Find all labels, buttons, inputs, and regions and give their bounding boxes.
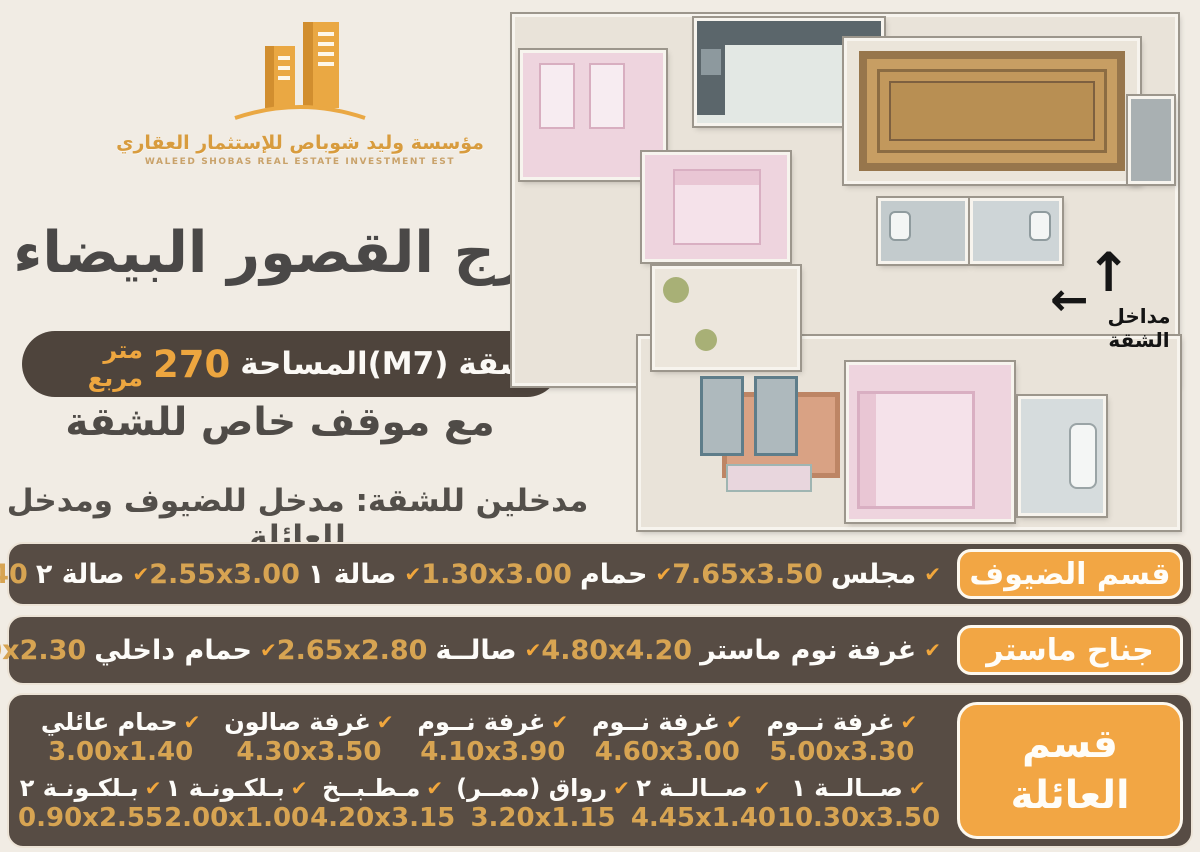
room-label: مجلس (831, 559, 916, 590)
guest-section-row: قسم الضيوف ✔ مجلس 7.65x3.50 ✔ حمام 1.30x… (7, 542, 1193, 606)
room-dimensions: 10.30x3.50 (777, 803, 940, 833)
master-suite-row: جناح ماستر ✔ غرفة نوم ماستر 4.80x4.20 ✔ … (7, 615, 1193, 685)
check-icon: ✔ (909, 776, 926, 800)
room-dimensions: 2.55x3.00 (149, 559, 300, 590)
family-section-badge: قسم العائلة (957, 702, 1183, 839)
guest-section-items: ✔ مجلس 7.65x3.50 ✔ حمام 1.30x3.00 ✔ صالة… (0, 559, 941, 590)
brand-logo-block: مؤسسة وليد شوباص للإستثمار العقاري WALEE… (110, 12, 490, 167)
room-dimensions: 3.00x1.40 (48, 737, 193, 767)
brand-name-arabic: مؤسسة وليد شوباص للإستثمار العقاري (110, 132, 490, 154)
apartment-info-pill: شقة (M7) المساحة 270 متر مربع (22, 331, 560, 397)
room-label: صالة ١ (308, 559, 397, 590)
check-icon: ✔ (184, 710, 201, 734)
master-suite-items: ✔ غرفة نوم ماستر 4.80x4.20 ✔ صالــة 2.65… (0, 635, 941, 666)
check-icon: ✔ (377, 710, 394, 734)
room-label: حمام عائلي (41, 708, 178, 736)
family-items-line-2: ✔صــالــة ١ 10.30x3.50 ✔صــالــة ٢ 4.45x… (17, 774, 941, 833)
check-icon: ✔ (260, 638, 277, 662)
room-dimensions: 4.30x3.50 (236, 737, 381, 767)
room-dimensions: 4.45x1.40 (631, 803, 776, 833)
room-spec-table: قسم الضيوف ✔ مجلس 7.65x3.50 ✔ حمام 1.30x… (7, 542, 1193, 848)
room-spec: ✔غرفة نــوم 5.00x3.30 (766, 708, 917, 767)
room-spec: ✔ صالة ٢ 2.25x1.40 (0, 559, 149, 590)
check-icon: ✔ (405, 562, 422, 586)
room-dressing-corridor (652, 266, 800, 370)
room-dimensions: 2.65x2.80 (277, 635, 428, 666)
check-icon: ✔ (900, 710, 917, 734)
room-dimensions: 0.90x2.55 (18, 803, 163, 833)
family-items-line-1: ✔غرفة نــوم 5.00x3.30 ✔غرفة نــوم 4.60x3… (17, 708, 941, 767)
room-label: صالــة (435, 635, 516, 666)
room-spec: ✔بـلكـونـة ١ 2.00x1.00 (164, 774, 309, 833)
master-bed (857, 391, 975, 509)
room-dimensions: 4.60x3.00 (595, 737, 740, 767)
check-icon: ✔ (132, 562, 149, 586)
check-icon: ✔ (924, 638, 941, 662)
check-icon: ✔ (655, 562, 672, 586)
room-master-bathroom (1018, 396, 1106, 516)
kitchen-sink (701, 49, 721, 75)
room-spec: ✔ حمام 1.30x3.00 (421, 559, 672, 590)
room-spec: ✔ حمام داخلي 1.40x2.30 (0, 635, 277, 666)
room-dimensions: 1.30x3.00 (421, 559, 572, 590)
room-dimensions: 1.40x2.30 (0, 635, 86, 666)
room-label: حمام (580, 559, 648, 590)
sofa (726, 464, 812, 492)
bed-pillows (675, 171, 759, 185)
room-master-bedroom (846, 362, 1014, 522)
room-bedroom (642, 152, 790, 262)
room-label: غرفة نــوم (417, 708, 545, 736)
room-label: بـلكـونـة ١ (166, 774, 285, 802)
room-dimensions: 5.00x3.30 (769, 737, 914, 767)
check-icon: ✔ (754, 776, 771, 800)
family-section-items: ✔غرفة نــوم 5.00x3.30 ✔غرفة نــوم 4.60x3… (17, 702, 941, 839)
room-spec: ✔صــالــة ١ 10.30x3.50 (777, 774, 940, 833)
room-dimensions: 4.80x4.20 (541, 635, 692, 666)
room-label: غرفة نــوم (592, 708, 720, 736)
carpet-border-pattern (877, 69, 1107, 153)
bed (589, 63, 625, 129)
toilet (1029, 211, 1051, 241)
room-label: رواق (ممــر) (456, 774, 607, 802)
apartment-area: المساحة 270 متر مربع (52, 336, 368, 392)
check-icon: ✔ (613, 776, 630, 800)
room-dimensions: 7.65x3.50 (672, 559, 823, 590)
room-spec: ✔ صالــة 2.65x2.80 (277, 635, 542, 666)
room-spec: ✔ مجلس 7.65x3.50 (672, 559, 941, 590)
page-title: برج القصور البيضاء (0, 220, 565, 286)
lounge-bed (700, 376, 744, 456)
majlis-carpet (859, 51, 1125, 171)
entrance-arrow-up-icon: ↑ (1086, 246, 1131, 300)
guest-section-badge: قسم الضيوف (957, 549, 1183, 599)
room-label: بـلكـونـة ٢ (20, 774, 139, 802)
check-icon: ✔ (726, 710, 743, 734)
room-label: صــالــة ١ (791, 774, 903, 802)
room-bathroom (970, 198, 1062, 264)
room-spec: ✔مـطـبــخ 4.20x3.15 (310, 774, 455, 833)
bed (539, 63, 575, 129)
check-icon: ✔ (291, 776, 308, 800)
room-label: صالة ٢ (36, 559, 125, 590)
room-spec: ✔صــالــة ٢ 4.45x1.40 (631, 774, 776, 833)
room-label: غرفة نوم ماستر (700, 635, 916, 666)
room-spec: ✔حمام عائلي 3.00x1.40 (41, 708, 201, 767)
room-majlis (844, 38, 1140, 184)
badge-line-2: العائلة (1011, 771, 1130, 822)
area-label: المساحة (240, 346, 367, 382)
area-value: 270 (153, 343, 230, 386)
check-icon: ✔ (924, 562, 941, 586)
utility-shaft (1128, 96, 1174, 184)
room-spec: ✔غرفة نــوم 4.60x3.00 (592, 708, 743, 767)
room-dimensions: 4.20x3.15 (310, 803, 455, 833)
room-label: مـطـبــخ (322, 774, 420, 802)
room-spec: ✔بـلكـونـة ٢ 0.90x2.55 (18, 774, 163, 833)
room-spec: ✔ غرفة نوم ماستر 4.80x4.20 (541, 635, 941, 666)
bed-pillows (860, 394, 876, 506)
entrance-label: مداخل الشقة (1078, 304, 1200, 352)
towers-logo-icon (215, 12, 385, 130)
plant (695, 329, 717, 351)
room-label: غرفة نــوم (766, 708, 894, 736)
brand-name-english: WALEED SHOBAS REAL ESTATE INVESTMENT EST (110, 157, 490, 167)
room-spec: ✔رواق (ممــر) 3.20x1.15 (456, 774, 630, 833)
floor-plan: ↑ ← مداخل الشقة (500, 0, 1200, 545)
carpet-medallion (889, 81, 1095, 141)
room-spec: ✔غرفة صالون 4.30x3.50 (224, 708, 393, 767)
family-section-row: قسم العائلة ✔غرفة نــوم 5.00x3.30 ✔غرفة … (7, 693, 1193, 848)
room-dimensions: 2.25x1.40 (0, 559, 28, 590)
master-suite-badge: جناح ماستر (957, 625, 1183, 675)
room-dimensions: 4.10x3.90 (420, 737, 565, 767)
room-bathroom (878, 198, 968, 264)
room-label: غرفة صالون (224, 708, 371, 736)
check-icon: ✔ (525, 638, 542, 662)
room-dimensions: 2.00x1.00 (164, 803, 309, 833)
toilet (889, 211, 911, 241)
check-icon: ✔ (145, 776, 162, 800)
plant (663, 277, 689, 303)
room-label: حمام داخلي (94, 635, 252, 666)
check-icon: ✔ (426, 776, 443, 800)
lounge-bed (754, 376, 798, 456)
apartment-code: (M7) (368, 346, 449, 382)
room-label: صــالــة ٢ (636, 774, 748, 802)
badge-line-1: قسم (1022, 720, 1118, 771)
room-spec: ✔غرفة نــوم 4.10x3.90 (417, 708, 568, 767)
check-icon: ✔ (551, 710, 568, 734)
bed (673, 169, 761, 245)
area-unit: متر مربع (52, 336, 143, 392)
parking-note: مع موقف خاص للشقة (0, 400, 560, 445)
bathtub (1069, 423, 1097, 489)
room-spec: ✔ صالة ١ 2.55x3.00 (149, 559, 421, 590)
room-dimensions: 3.20x1.15 (470, 803, 615, 833)
